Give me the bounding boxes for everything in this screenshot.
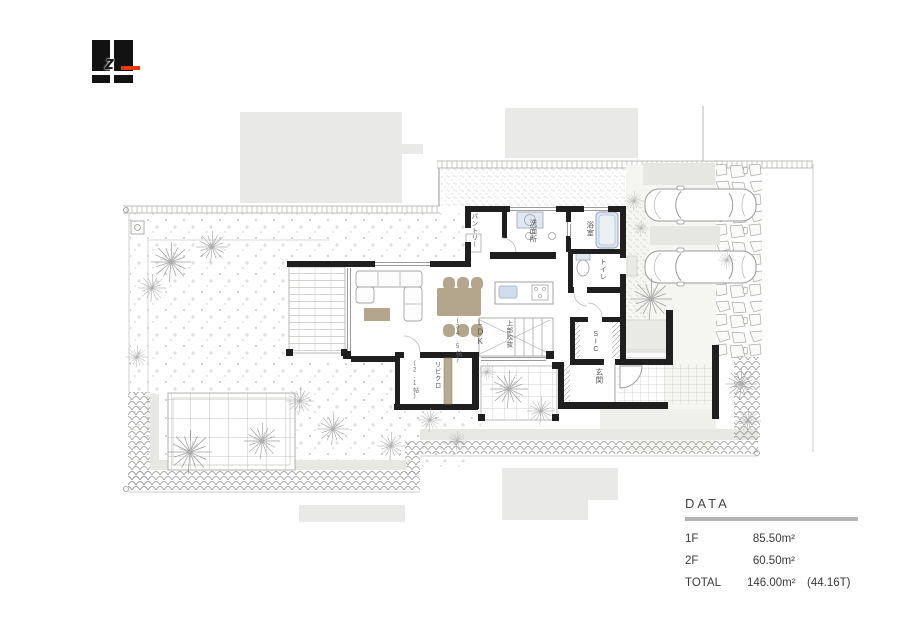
area-row-2f: 2F 60.50m² — [685, 555, 861, 567]
label-void-above: 上部吹抜 — [504, 320, 511, 348]
label-living-closet: リビクロ (2.1帖) — [404, 361, 454, 400]
dining-table — [437, 288, 481, 316]
boundary-marker — [124, 487, 129, 492]
area-row-total: TOTAL 146.00m² (44.16T) — [685, 577, 861, 589]
label-pantry: パントリー — [469, 213, 476, 248]
coffee-table — [364, 308, 390, 321]
data-panel-title: DATA — [685, 496, 861, 511]
label-sic: SIC — [592, 331, 599, 354]
kitchen-island — [495, 282, 553, 304]
neighbor-building-north — [505, 108, 638, 158]
logo-red-accent — [121, 66, 140, 70]
curb-left — [150, 394, 159, 470]
kitchen-door-step — [627, 256, 637, 276]
logo-block-right-base — [114, 75, 133, 83]
label-entrance: 玄関 — [595, 368, 603, 384]
garden-terrace — [168, 393, 295, 470]
car-2 — [645, 248, 756, 286]
neighbor-building-south-small — [299, 505, 405, 522]
label-bath: 浴室 — [586, 221, 594, 237]
kitchen-sink — [499, 286, 517, 298]
toilet-fixture — [576, 253, 590, 276]
neighbor-building-southeast — [502, 468, 618, 520]
neighbor-building-northwest — [240, 112, 423, 203]
label-toilet: トイレ — [599, 258, 606, 281]
floor-plan-page: z パントリー 洗面所 浴室 トイレ LDK (34.5帖) 上部吹抜 リビクロ… — [0, 0, 900, 632]
data-panel-rows: 1F 85.50m² 2F 60.50m² TOTAL 146.00m² (44… — [685, 533, 861, 589]
carport-pad-1 — [643, 163, 715, 185]
company-logo: z — [92, 40, 142, 86]
south-step — [600, 409, 716, 429]
privacy-wall — [712, 345, 719, 419]
sic-shelf — [612, 322, 620, 358]
entry-landing — [622, 320, 668, 358]
stipple-north — [441, 167, 626, 207]
area-data-panel: DATA 1F 85.50m² 2F 60.50m² TOTAL 146.00m… — [685, 496, 861, 599]
utility-box — [131, 221, 144, 234]
bathtub — [596, 212, 618, 248]
entrance-patio — [481, 366, 557, 420]
car-1 — [645, 186, 756, 224]
label-washroom: 洗面所 — [529, 219, 537, 243]
logo-letter: z — [105, 53, 114, 74]
vanity-stool — [549, 233, 556, 240]
logo-block-left-base — [92, 75, 110, 83]
data-panel-rule — [685, 517, 858, 521]
area-row-1f: 1F 85.50m² — [685, 533, 861, 545]
west-deck — [289, 267, 345, 353]
curb-strip — [420, 429, 758, 440]
privacy-wall — [666, 310, 673, 365]
label-ldk: LDK (34.5帖) — [447, 318, 498, 364]
carport-pad-2 — [650, 226, 720, 245]
